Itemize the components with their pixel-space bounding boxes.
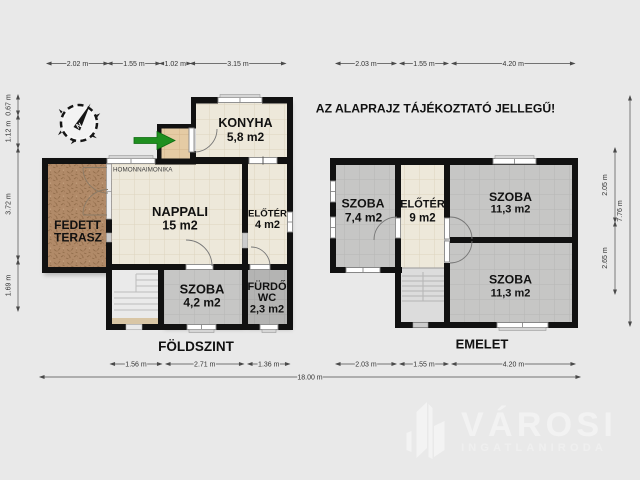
svg-text:1.36 m: 1.36 m — [258, 361, 280, 368]
svg-text:1.55 m: 1.55 m — [413, 61, 435, 68]
svg-text:4,2 m2: 4,2 m2 — [183, 296, 221, 310]
svg-text:HOMONNAIMONIKA: HOMONNAIMONIKA — [113, 167, 173, 174]
svg-text:INGATLANIRODA: INGATLANIRODA — [461, 442, 607, 454]
svg-text:5,8 m2: 5,8 m2 — [227, 130, 265, 144]
svg-text:EMELET: EMELET — [456, 337, 509, 352]
svg-text:SZOBA: SZOBA — [341, 197, 384, 211]
svg-text:1.12 m: 1.12 m — [6, 121, 13, 143]
svg-text:2.05 m: 2.05 m — [602, 174, 609, 196]
svg-text:7,4 m2: 7,4 m2 — [345, 211, 383, 225]
svg-text:SZOBA: SZOBA — [489, 273, 532, 287]
svg-text:AZ ALAPRAJZ TÁJÉKOZTATÓ JELLEG: AZ ALAPRAJZ TÁJÉKOZTATÓ JELLEGŰ! — [316, 101, 555, 116]
svg-text:2.71 m: 2.71 m — [194, 361, 216, 368]
svg-text:7.76 m: 7.76 m — [617, 200, 624, 222]
svg-text:1.55 m: 1.55 m — [413, 361, 435, 368]
svg-text:2,3 m2: 2,3 m2 — [250, 304, 284, 316]
svg-text:ELŐTÉR: ELŐTÉR — [248, 208, 287, 220]
svg-text:4.20 m: 4.20 m — [503, 61, 525, 68]
svg-text:1.69 m: 1.69 m — [6, 275, 13, 297]
svg-text:11,3 m2: 11,3 m2 — [491, 204, 531, 216]
svg-text:0.67 m: 0.67 m — [6, 94, 13, 116]
svg-text:SZOBA: SZOBA — [180, 282, 225, 297]
svg-text:4 m2: 4 m2 — [255, 219, 280, 231]
svg-text:18.00 m: 18.00 m — [297, 374, 322, 381]
svg-text:1.55 m: 1.55 m — [123, 61, 145, 68]
svg-text:15 m2: 15 m2 — [162, 219, 197, 233]
svg-text:11,3 m2: 11,3 m2 — [491, 288, 531, 300]
svg-text:VÁROSI: VÁROSI — [461, 406, 617, 444]
svg-text:WC: WC — [258, 292, 276, 304]
svg-text:TERASZ: TERASZ — [54, 231, 102, 245]
svg-text:3.15 m: 3.15 m — [227, 61, 249, 68]
svg-text:4.20 m: 4.20 m — [503, 361, 525, 368]
svg-text:1.56 m: 1.56 m — [125, 361, 147, 368]
svg-text:2.03 m: 2.03 m — [355, 361, 377, 368]
svg-text:9 m2: 9 m2 — [409, 213, 435, 225]
svg-text:2.02 m: 2.02 m — [67, 61, 89, 68]
svg-text:SZOBA: SZOBA — [489, 190, 532, 204]
svg-text:FÖLDSZINT: FÖLDSZINT — [158, 339, 234, 354]
svg-text:2.03 m: 2.03 m — [355, 61, 377, 68]
svg-text:ELŐTÉR: ELŐTÉR — [400, 198, 445, 211]
svg-text:NAPPALI: NAPPALI — [152, 204, 208, 219]
svg-text:KONYHA: KONYHA — [218, 116, 272, 130]
svg-text:3.72 m: 3.72 m — [6, 193, 13, 215]
svg-text:1.02 m: 1.02 m — [165, 61, 187, 68]
svg-text:2.65 m: 2.65 m — [602, 247, 609, 269]
